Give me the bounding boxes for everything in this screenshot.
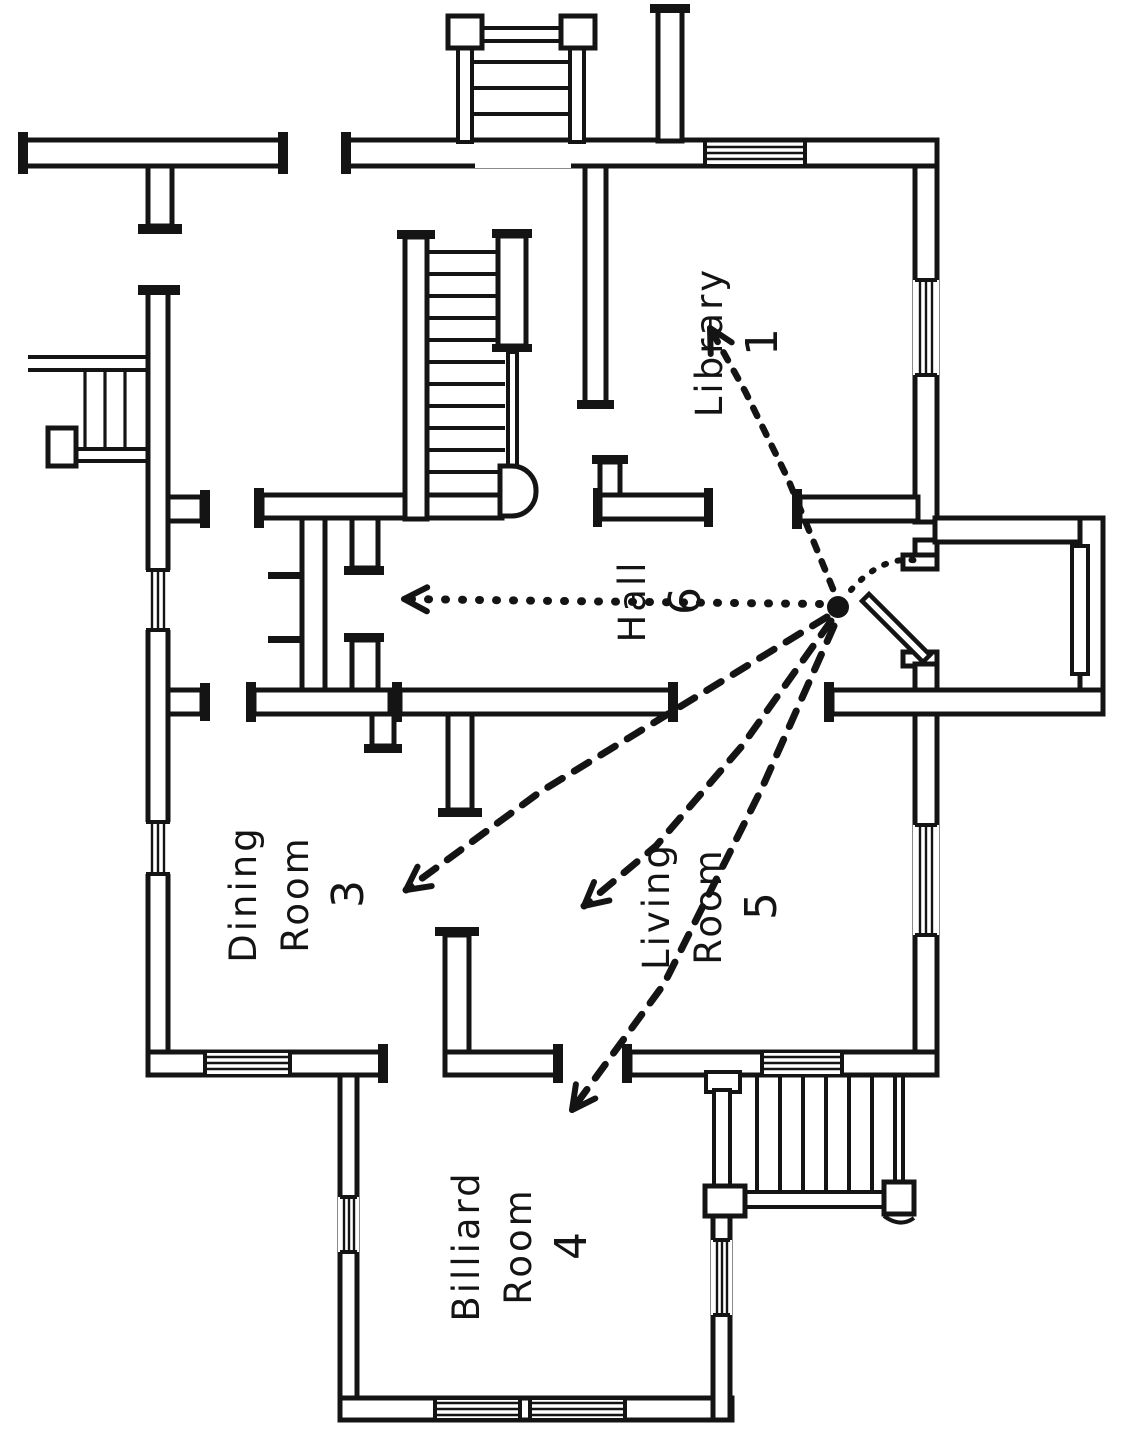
window-library-east xyxy=(913,280,939,375)
window-left-upper xyxy=(145,570,171,630)
stair-curtail-step xyxy=(500,466,536,516)
top-porch-steps xyxy=(448,16,595,142)
window-library-north xyxy=(705,142,805,164)
viewpoint-dot xyxy=(827,596,849,618)
window-billiard-south-2 xyxy=(530,1398,625,1420)
walls-layer xyxy=(18,4,1103,1420)
entry-door xyxy=(851,560,930,662)
windows-layer xyxy=(145,142,939,1420)
floor-plan-drawing xyxy=(0,0,1128,1440)
floor-plan xyxy=(0,0,1128,1440)
arrowhead-dining-room xyxy=(406,886,432,890)
window-billiard-west xyxy=(338,1197,359,1252)
sightline-to-hall xyxy=(404,599,820,604)
window-left-lower xyxy=(145,822,171,874)
sightline-to-library xyxy=(710,328,833,589)
arrowhead-hall xyxy=(404,587,427,599)
door-leaf xyxy=(862,594,930,662)
window-living-east xyxy=(913,825,939,935)
window-billiard-east xyxy=(711,1240,732,1315)
window-dining-south xyxy=(205,1052,290,1075)
left-porch-steps xyxy=(28,357,148,466)
sightline-to-living-room xyxy=(584,621,831,906)
main-staircase xyxy=(428,229,536,516)
bottom-porch-steps xyxy=(705,1072,914,1223)
window-billiard-south-1 xyxy=(435,1398,520,1420)
porch-door-living-south xyxy=(762,1052,842,1075)
arrowhead-library xyxy=(710,328,711,354)
